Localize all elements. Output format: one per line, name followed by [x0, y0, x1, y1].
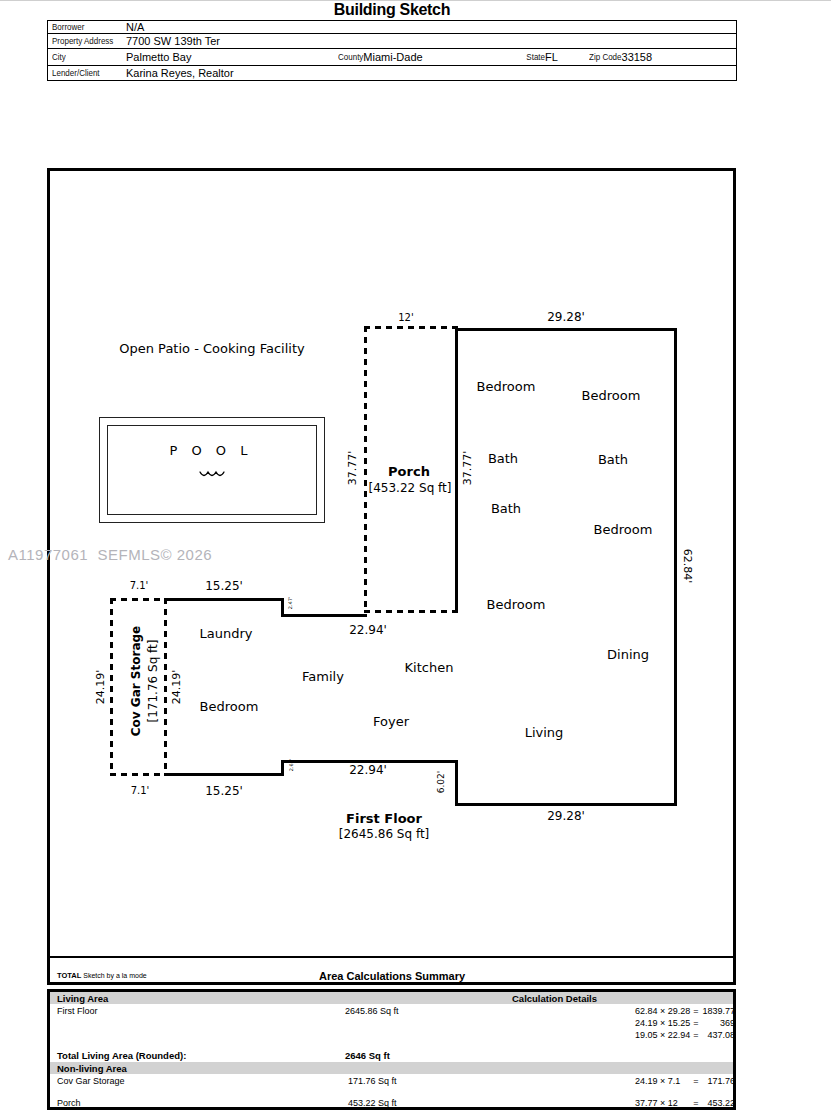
- room-label: Bedroom: [487, 597, 546, 612]
- dimension-label: 24.19': [94, 670, 107, 705]
- borrower-label: Borrower: [48, 22, 126, 31]
- first-floor-area-label: [2645.86 Sq ft]: [339, 827, 430, 841]
- dimension-label: 6.02': [436, 771, 446, 794]
- room-label: Foyer: [373, 714, 409, 729]
- borrower-row: Borrower N/A: [48, 21, 736, 34]
- calc-line: 19.05 × 22.94=437.08: [635, 1030, 735, 1040]
- calc-line: 62.84 × 29.28=1839.77: [635, 1006, 735, 1016]
- dimension-label: 7.1': [130, 580, 149, 591]
- room-label: Bedroom: [582, 388, 641, 403]
- first-floor-label: First Floor: [346, 811, 422, 826]
- city-label: City: [48, 52, 126, 61]
- zip-label: Zip Code: [589, 52, 621, 61]
- dimension-label: 2.67': [288, 759, 294, 772]
- mls-watermark: A11977061 SEFMLS© 2026: [8, 546, 212, 563]
- building-sketch-page: Building Sketch Borrower N/A Property Ad…: [0, 0, 831, 1115]
- wall-line: [455, 760, 458, 806]
- dimension-label: 15.25': [205, 579, 243, 593]
- porch-row-name: Porch: [57, 1098, 81, 1108]
- dimension-label: 22.94': [349, 623, 387, 637]
- covgar-row-name: Cov Gar Storage: [57, 1076, 125, 1086]
- county-label: County: [338, 52, 363, 61]
- area-summary-title: Area Calculations Summary: [47, 970, 737, 982]
- room-label: Kitchen: [405, 660, 454, 675]
- page-title: Building Sketch: [47, 1, 737, 19]
- wall-line: [110, 773, 167, 776]
- calc-details-header: Calculation Details: [512, 993, 597, 1004]
- total-living-label: Total Living Area (Rounded):: [57, 1050, 186, 1061]
- room-label: Laundry: [200, 626, 253, 641]
- living-area-header: Living Area: [57, 993, 108, 1004]
- dimension-label: 37.77': [461, 451, 474, 486]
- wall-line: [455, 328, 677, 331]
- address-row: Property Address 7700 SW 139th Ter: [48, 34, 736, 49]
- porch-label: Porch: [388, 464, 430, 479]
- porch-calc-result: 453.22: [701, 1098, 735, 1108]
- wall-line: [364, 610, 458, 613]
- state-label: State: [526, 52, 545, 61]
- wall-line: [164, 598, 167, 776]
- open-patio-label: Open Patio - Cooking Facility: [119, 341, 304, 356]
- water-wave-icon: [197, 468, 231, 480]
- dimension-label: 29.28': [547, 809, 585, 823]
- dimension-label: 15.25': [205, 784, 243, 798]
- address-value: 7700 SW 139th Ter: [126, 35, 220, 47]
- wall-line: [281, 614, 367, 617]
- wall-line: [164, 598, 284, 601]
- lender-value: Karina Reyes, Realtor: [126, 67, 234, 79]
- wall-line: [674, 328, 677, 806]
- room-label: Family: [302, 669, 344, 684]
- covgar-calc-expr: 24.19 × 7.1: [635, 1076, 691, 1086]
- porch-calc-expr: 37.77 × 12: [635, 1098, 691, 1108]
- covgar-calc: 24.19 × 7.1 = 171.76: [635, 1076, 735, 1086]
- state-value: FL: [545, 51, 589, 63]
- dimension-label: 22.94': [349, 763, 387, 777]
- room-label: Dining: [607, 647, 649, 662]
- first-floor-row-name: First Floor: [57, 1006, 98, 1016]
- address-label: Property Address: [48, 36, 126, 45]
- wall-line: [455, 328, 458, 613]
- calc-line: 24.19 × 15.25=369: [635, 1018, 735, 1028]
- porch-row-area: 453.22 Sq ft: [348, 1098, 397, 1108]
- room-label: Bath: [491, 501, 521, 516]
- dimension-label: 29.28': [547, 310, 585, 324]
- county-value: Miami-Dade: [363, 51, 526, 63]
- room-label: Bedroom: [477, 379, 536, 394]
- dimension-label: 7.1': [131, 785, 150, 796]
- wall-line: [110, 598, 167, 601]
- property-info-table: Borrower N/A Property Address 7700 SW 13…: [47, 20, 737, 81]
- sketch-border-box: [47, 168, 736, 985]
- dimension-label: 24.19': [170, 670, 183, 705]
- wall-line: [364, 326, 367, 613]
- porch-calc: 37.77 × 12 = 453.22: [635, 1098, 735, 1108]
- room-label: Bath: [488, 451, 518, 466]
- wall-line: [455, 803, 677, 806]
- room-label: Bedroom: [200, 699, 259, 714]
- wall-line: [364, 326, 458, 329]
- total-living-value: 2646 Sq ft: [345, 1050, 390, 1061]
- city-value: Palmetto Bay: [126, 51, 338, 63]
- covgar-row-area: 171.76 Sq ft: [348, 1076, 397, 1086]
- lender-row: Lender/Client Karina Reyes, Realtor: [48, 66, 736, 80]
- dimension-label: 62.84': [681, 549, 694, 584]
- equals-sign: =: [691, 1098, 701, 1108]
- room-label: Bath: [598, 452, 628, 467]
- dimension-label: 12': [398, 312, 413, 323]
- sketch-footer-divider: [50, 956, 733, 958]
- garage-area-label: [171.76 Sq ft]: [146, 640, 160, 723]
- covgar-calc-result: 171.76: [701, 1076, 735, 1086]
- pool-label: P O O L: [170, 443, 253, 458]
- wall-line: [164, 773, 284, 776]
- dimension-label: 37.77': [346, 451, 359, 486]
- lender-label: Lender/Client: [48, 68, 126, 77]
- porch-area-label: [453.22 Sq ft]: [369, 481, 452, 495]
- borrower-value: N/A: [126, 21, 144, 33]
- room-label: Living: [525, 725, 564, 740]
- equals-sign: =: [691, 1076, 701, 1086]
- dimension-label: 2.47': [287, 597, 293, 610]
- garage-label: Cov Gar Storage: [129, 626, 143, 736]
- nonliving-band: [50, 1062, 733, 1074]
- area-calculations-table: Living Area Calculation Details First Fl…: [47, 989, 736, 1110]
- wall-line: [110, 598, 113, 776]
- city-row: City Palmetto Bay County Miami-Dade Stat…: [48, 49, 736, 66]
- zip-value: 33158: [622, 51, 653, 63]
- first-floor-row-area: 2645.86 Sq ft: [345, 1006, 399, 1016]
- living-area-band: [50, 992, 733, 1004]
- room-label: Bedroom: [594, 522, 653, 537]
- nonliving-header: Non-living Area: [57, 1063, 127, 1074]
